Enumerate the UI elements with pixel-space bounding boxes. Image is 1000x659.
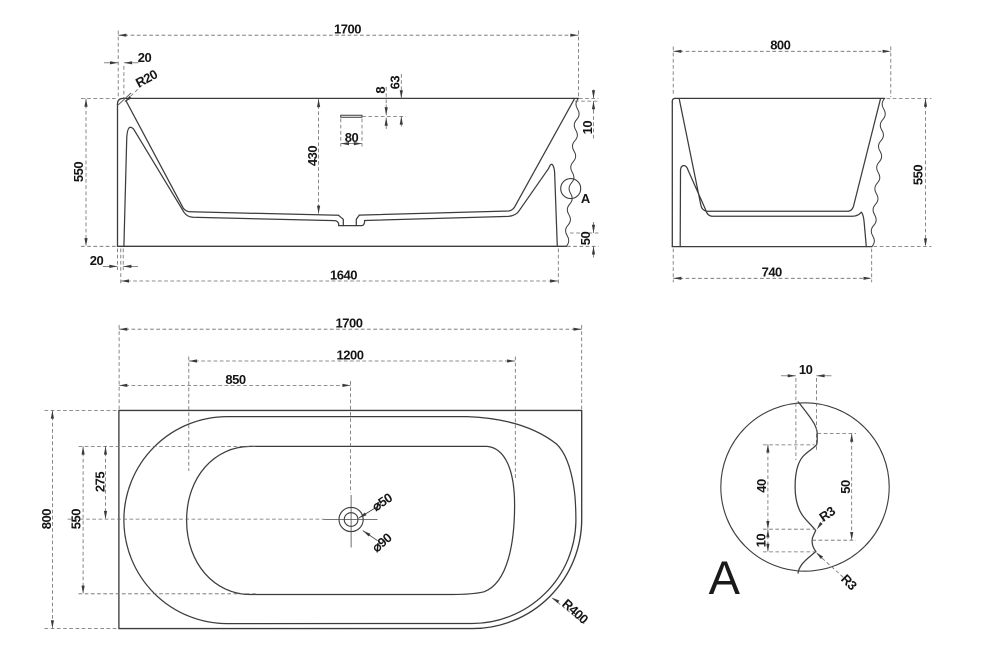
svg-text:1640: 1640 (330, 267, 357, 282)
svg-text:10: 10 (580, 121, 595, 135)
svg-text:A: A (709, 551, 741, 604)
svg-text:1200: 1200 (337, 347, 364, 362)
svg-text:10: 10 (799, 362, 813, 377)
svg-text:850: 850 (225, 372, 245, 387)
svg-text:8: 8 (373, 87, 388, 94)
svg-text:275: 275 (92, 472, 107, 492)
svg-text:1700: 1700 (334, 22, 361, 37)
svg-text:40: 40 (754, 479, 769, 493)
svg-text:50: 50 (838, 480, 853, 494)
svg-text:740: 740 (762, 265, 782, 280)
svg-text:550: 550 (911, 165, 926, 185)
svg-text:1700: 1700 (336, 316, 363, 331)
svg-text:550: 550 (71, 162, 86, 182)
svg-text:20: 20 (138, 50, 152, 65)
svg-text:800: 800 (39, 509, 54, 529)
svg-text:50: 50 (578, 232, 593, 246)
svg-text:10: 10 (754, 534, 769, 548)
svg-text:430: 430 (305, 146, 320, 166)
svg-text:A: A (581, 191, 591, 206)
svg-text:800: 800 (770, 38, 790, 53)
svg-text:20: 20 (90, 253, 104, 268)
svg-text:80: 80 (345, 130, 359, 145)
svg-text:63: 63 (388, 76, 403, 90)
